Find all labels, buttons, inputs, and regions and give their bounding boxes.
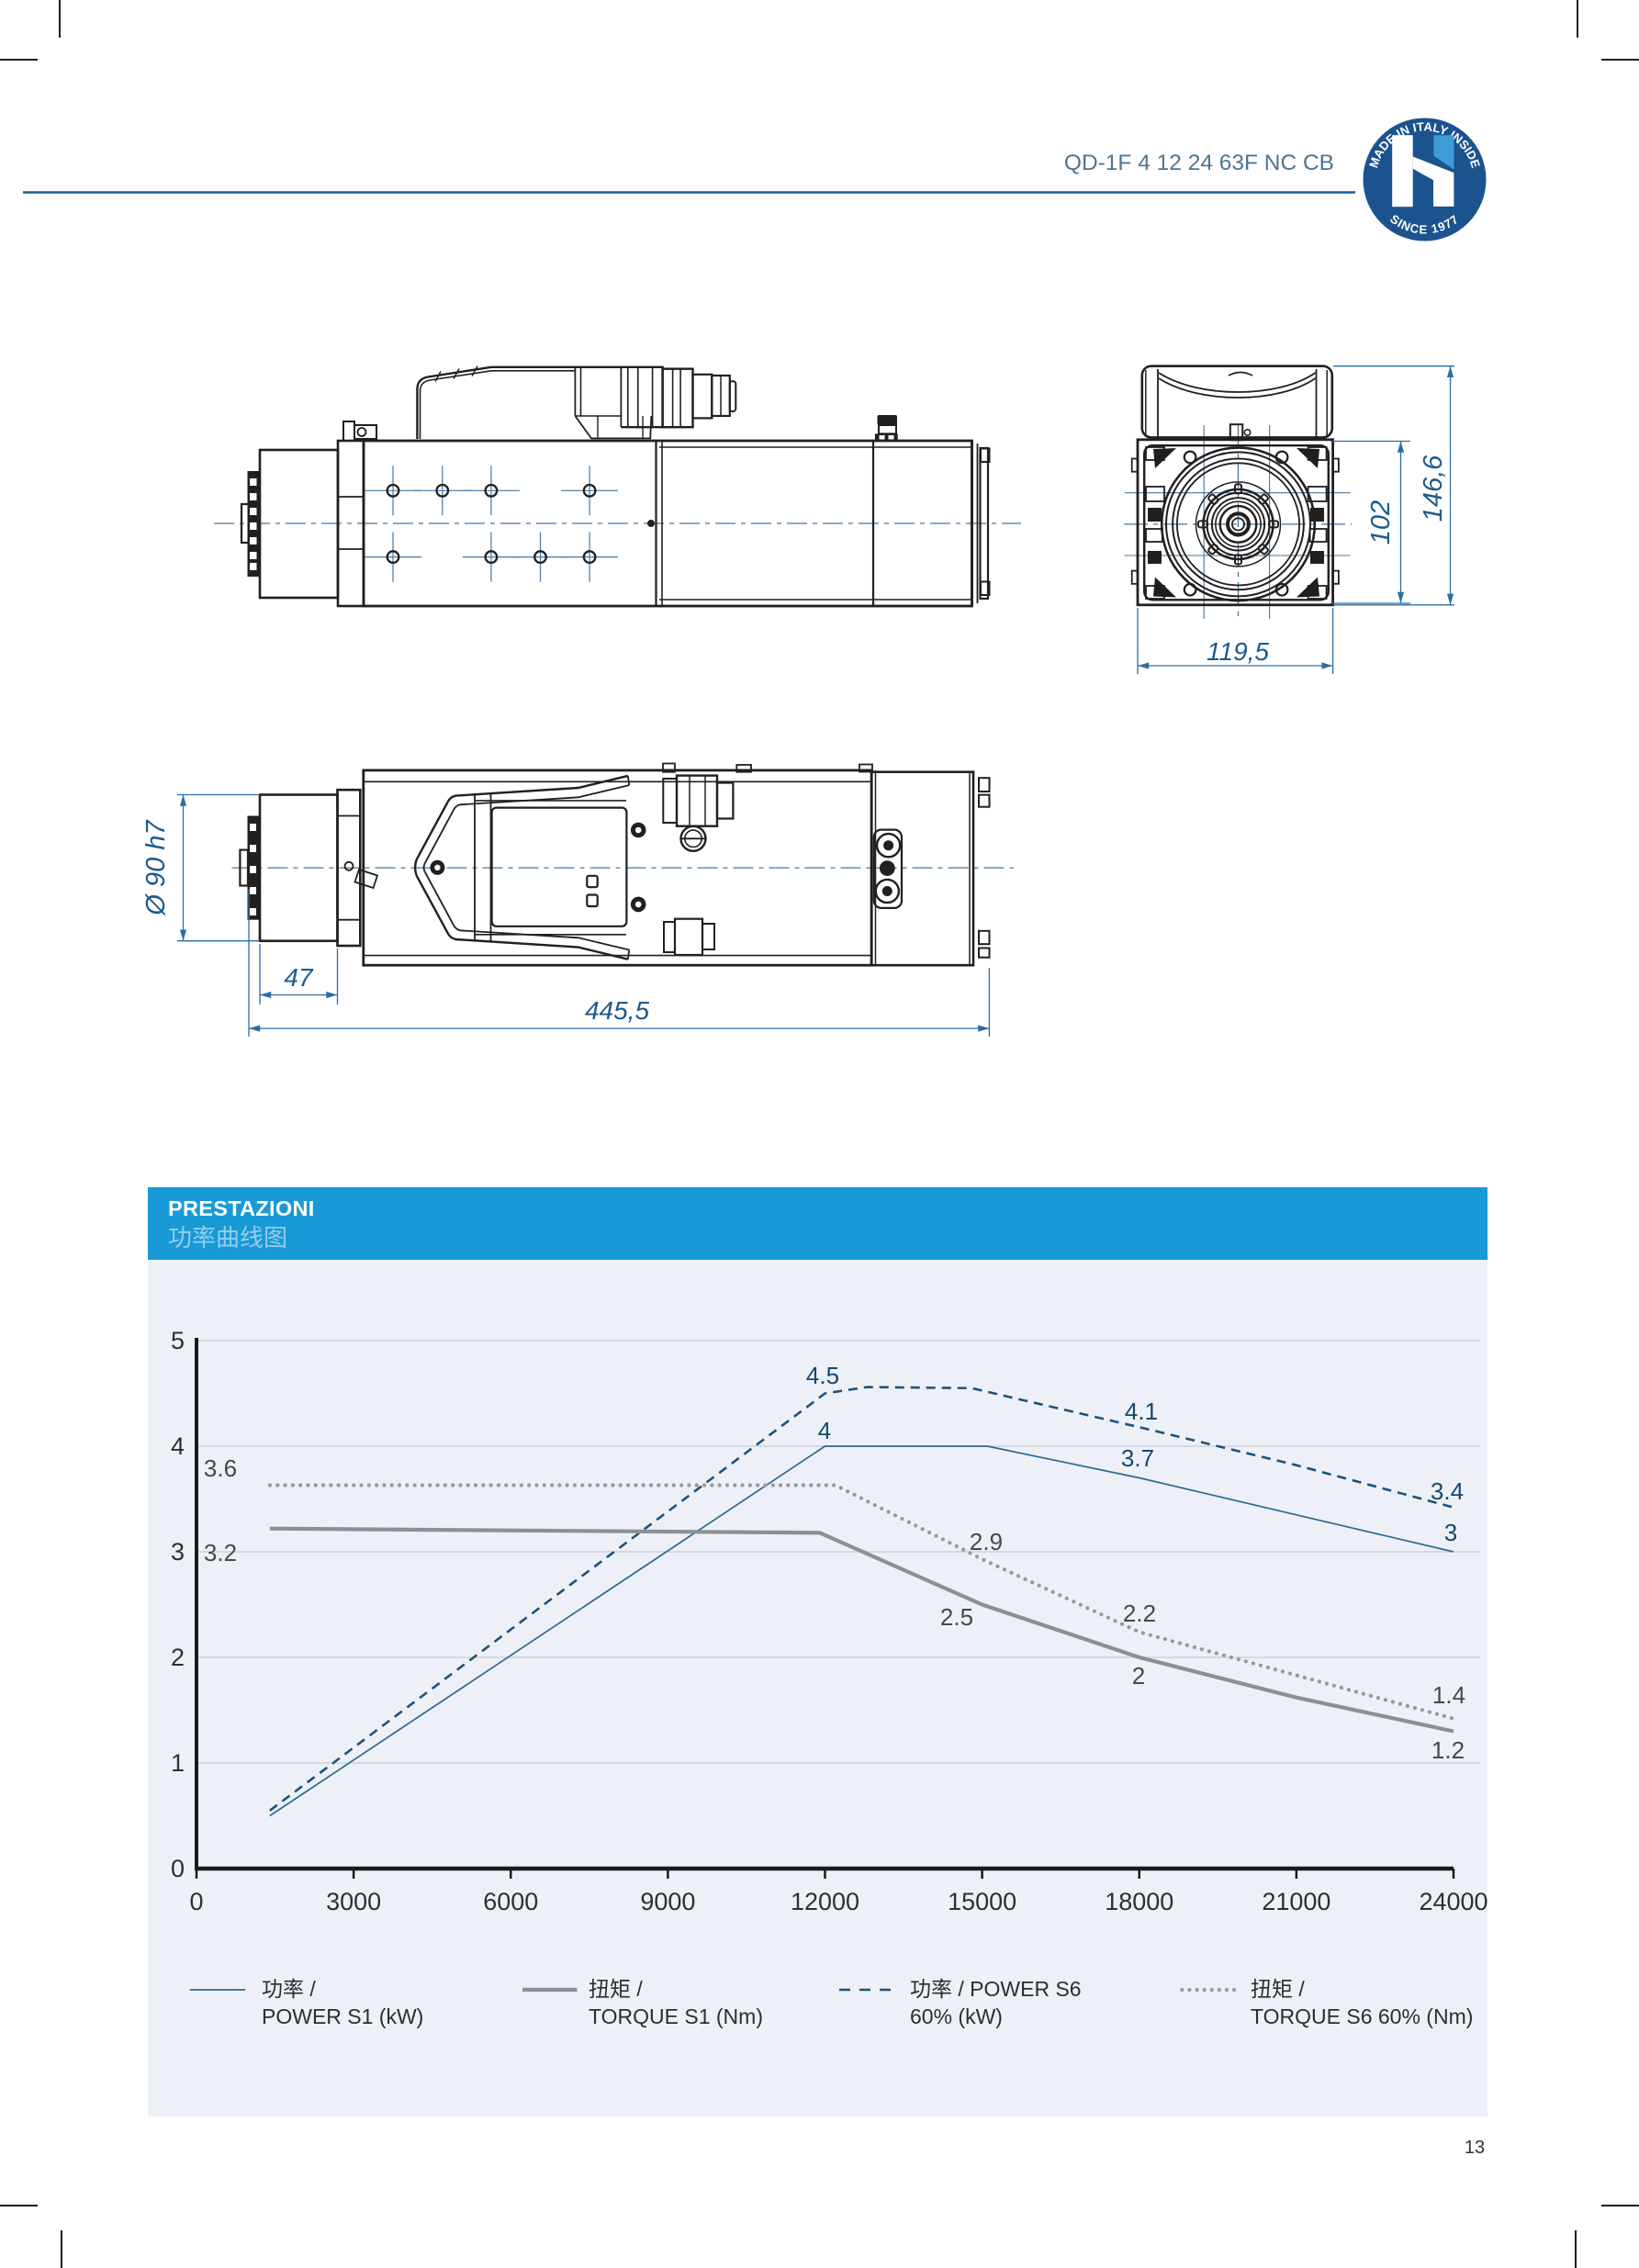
- svg-text:102: 102: [1366, 500, 1396, 545]
- svg-text:445,5: 445,5: [585, 996, 649, 1025]
- svg-text:2.9: 2.9: [970, 1528, 1003, 1555]
- svg-text:0: 0: [189, 1888, 203, 1915]
- svg-text:119,5: 119,5: [1207, 637, 1269, 666]
- svg-text:3.4: 3.4: [1431, 1477, 1464, 1505]
- svg-text:12000: 12000: [791, 1888, 859, 1915]
- svg-text:3.6: 3.6: [204, 1454, 237, 1482]
- svg-text:4.1: 4.1: [1125, 1398, 1158, 1425]
- svg-text:9000: 9000: [640, 1888, 695, 1915]
- svg-text:3.2: 3.2: [204, 1539, 237, 1566]
- svg-text:扭矩 /: 扭矩 /: [1251, 1977, 1305, 2001]
- svg-text:3: 3: [171, 1538, 185, 1566]
- svg-text:功率 / POWER S6: 功率 / POWER S6: [910, 1977, 1082, 2001]
- svg-text:功率 /: 功率 /: [262, 1977, 316, 2001]
- svg-text:47: 47: [284, 963, 314, 992]
- svg-text:2.2: 2.2: [1123, 1600, 1156, 1627]
- svg-text:3: 3: [1444, 1519, 1457, 1546]
- svg-text:2.5: 2.5: [940, 1603, 973, 1631]
- svg-text:146,6: 146,6: [1419, 455, 1448, 522]
- svg-text:2: 2: [1132, 1662, 1145, 1690]
- svg-text:21000: 21000: [1262, 1888, 1330, 1915]
- svg-text:1.4: 1.4: [1432, 1681, 1465, 1709]
- svg-text:24000: 24000: [1419, 1888, 1487, 1915]
- svg-text:4: 4: [171, 1432, 185, 1460]
- svg-text:15000: 15000: [948, 1888, 1016, 1915]
- svg-text:2: 2: [171, 1644, 185, 1671]
- svg-text:6000: 6000: [483, 1888, 538, 1915]
- svg-text:QD-1F 4 12 24 63F NC CB: QD-1F 4 12 24 63F NC CB: [1064, 151, 1334, 175]
- svg-text:1.2: 1.2: [1431, 1736, 1465, 1764]
- svg-text:4.5: 4.5: [806, 1362, 839, 1389]
- svg-text:18000: 18000: [1105, 1888, 1173, 1915]
- svg-text:扭矩 /: 扭矩 /: [589, 1977, 643, 2001]
- svg-text:3.7: 3.7: [1121, 1444, 1154, 1472]
- svg-text:Ø 90 h7: Ø 90 h7: [141, 819, 171, 916]
- svg-text:4: 4: [818, 1417, 831, 1444]
- svg-text:60% (kW): 60% (kW): [910, 2004, 1003, 2028]
- svg-text:TORQUE S6 60% (Nm): TORQUE S6 60% (Nm): [1251, 2004, 1473, 2028]
- svg-text:5: 5: [171, 1327, 185, 1354]
- svg-text:0: 0: [171, 1855, 185, 1882]
- svg-text:功率曲线图: 功率曲线图: [168, 1224, 287, 1252]
- svg-text:TORQUE S1 (Nm): TORQUE S1 (Nm): [589, 2004, 763, 2028]
- svg-text:13: 13: [1465, 2138, 1485, 2158]
- svg-text:POWER S1 (kW): POWER S1 (kW): [262, 2004, 423, 2028]
- svg-text:1: 1: [171, 1749, 185, 1777]
- svg-text:3000: 3000: [326, 1888, 381, 1915]
- svg-text:PRESTAZIONI: PRESTAZIONI: [168, 1196, 315, 1220]
